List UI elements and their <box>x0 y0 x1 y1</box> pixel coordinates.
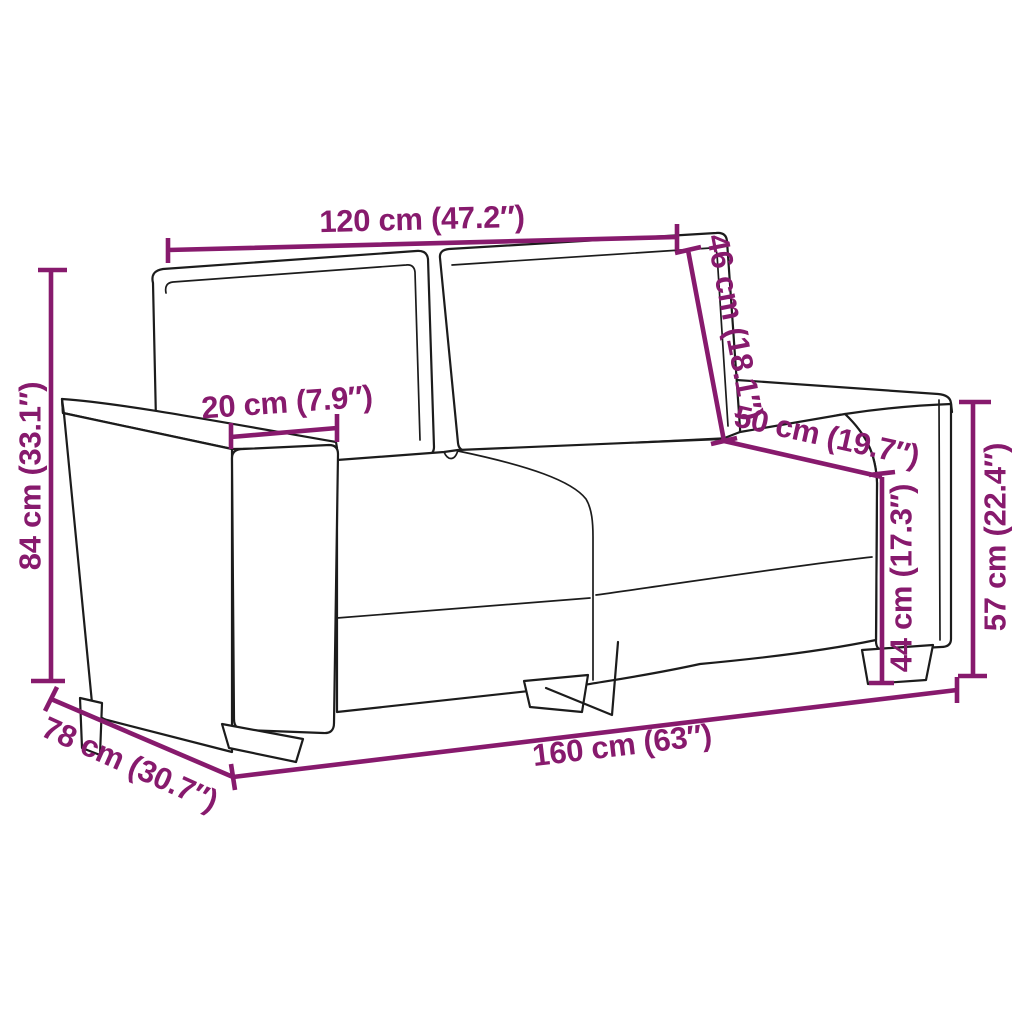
dim-overall-width-label: 160 cm (63″) <box>530 717 713 773</box>
back-cushion-right <box>440 233 740 451</box>
diagram-canvas: 120 cm (47.2″) 46 cm (18.1″) 20 cm (7.9″… <box>0 0 1024 1024</box>
dim-overall-height-label: 84 cm (33.1″) <box>13 382 48 570</box>
dim-overall-height: 84 cm (33.1″) <box>13 268 68 683</box>
right-arm-seam <box>939 400 940 640</box>
dim-armrest-height: 57 cm (22.4″) <box>958 402 1013 676</box>
sofa-drawing <box>62 233 952 762</box>
left-arm-front-face <box>232 445 338 733</box>
sofa-leg-front-middle <box>524 675 588 712</box>
dim-seat-height-label: 44 cm (17.3″) <box>884 484 919 672</box>
dim-back-width-label: 120 cm (47.2″) <box>319 199 525 239</box>
sofa-dimension-diagram: 120 cm (47.2″) 46 cm (18.1″) 20 cm (7.9″… <box>0 0 1024 1024</box>
dim-armrest-height-label: 57 cm (22.4″) <box>978 443 1013 631</box>
